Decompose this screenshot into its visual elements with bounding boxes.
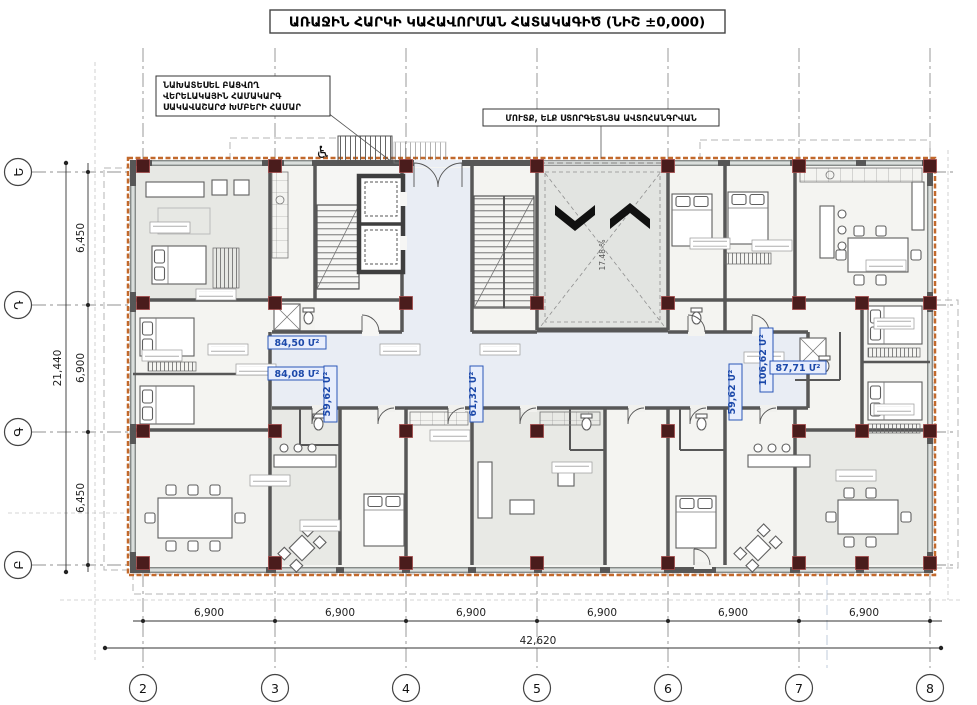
ramp-slope-label: 17.48 %	[598, 240, 607, 271]
wheelchair-icon: ♿	[315, 143, 330, 163]
dim-span: 6,900	[194, 607, 224, 619]
annotations: ԱՌԱՋԻՆ ՀԱՐԿԻ ԿԱՀԱՎՈՐՄԱՆ ՀԱՏԱԿԱԳԻԾ (ՆԻՇ ±…	[156, 10, 725, 162]
grid-row-g: Գ	[11, 427, 26, 437]
lobby-zone	[404, 168, 472, 332]
area-label-7: 87,71 Մ²	[776, 363, 821, 374]
elevator-door	[400, 236, 407, 250]
elevator-note-line-2: ՎԵՐԵԼԱԿԱՅԻՆ ՀԱՄԱԿԱՐԳ	[163, 91, 282, 101]
entrance-steps	[338, 136, 392, 163]
floor-plan-canvas: 17.48 % ♿	[0, 0, 977, 705]
grid-col-4: 4	[402, 681, 410, 696]
elevator-door	[400, 192, 407, 206]
grid-col-7: 7	[795, 681, 803, 696]
dim-span: 6,900	[75, 353, 87, 383]
dim-span: 6,900	[456, 607, 486, 619]
dim-total-h: 42,620	[520, 635, 557, 647]
elevator-note-line-1: ՆԱԽԱՏԵՍԵԼ ԲԱՑՎՈՂ	[163, 80, 259, 90]
grid-row-d: Դ	[11, 300, 26, 310]
dim-span: 6,900	[587, 607, 617, 619]
area-label-1: 84,50 Մ²	[275, 338, 320, 349]
area-label-3: 59,62 Մ²	[322, 372, 333, 417]
page-title: ԱՌԱՋԻՆ ՀԱՐԿԻ ԿԱՀԱՎՈՐՄԱՆ ՀԱՏԱԿԱԳԻԾ (ՆԻՇ ±…	[289, 15, 705, 31]
elevator-note-line-3: ՍԱԿԱՎԱՇԱՐԺ ԽՄԲԵՐԻ ՀԱՄԱՐ	[163, 102, 301, 112]
dim-span: 6,450	[75, 483, 87, 513]
dim-span: 6,450	[75, 223, 87, 253]
dim-span: 6,900	[325, 607, 355, 619]
grid-col-6: 6	[664, 681, 672, 696]
floor-plan-page: 17.48 % ♿	[0, 0, 977, 705]
dim-span: 6,900	[849, 607, 879, 619]
grid-col-8: 8	[926, 681, 934, 696]
building: 17.48 % ♿	[60, 136, 960, 600]
grid-row-b: Բ	[11, 560, 26, 569]
parking-note: ՄՈՒՏՔ, ԵԼՔ ՍՏՈՐԳԵՏՆՅԱ ԱՎՏՈՀԱՆԳՐՎԱՆ	[505, 113, 696, 123]
grid-col-5: 5	[533, 681, 541, 696]
grid-col-3: 3	[271, 681, 279, 696]
grid-row-e: Ե	[11, 167, 26, 176]
area-label-6: 106,62 Մ²	[758, 334, 769, 386]
dim-total-v: 21,440	[52, 350, 64, 387]
dim-span: 6,900	[718, 607, 748, 619]
area-label-2: 84,08 Մ²	[275, 369, 320, 380]
area-label-5: 59,62 Մ²	[727, 370, 738, 415]
area-label-4: 61,32 Մ²	[468, 372, 479, 417]
grid-col-2: 2	[139, 681, 147, 696]
